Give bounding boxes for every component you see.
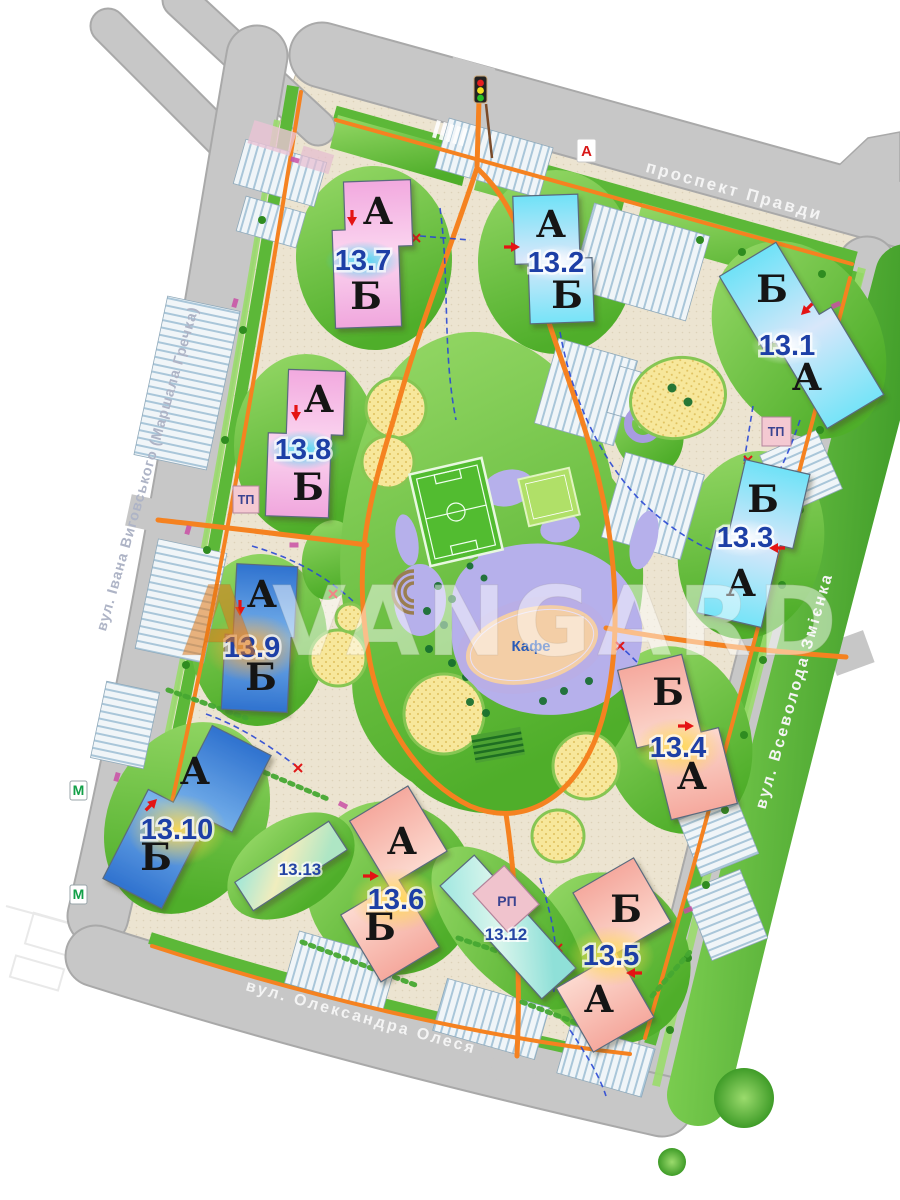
section-letter: А xyxy=(536,202,566,246)
section-letter: А xyxy=(387,819,417,863)
section-letter: А xyxy=(677,754,707,798)
watermark-text: VANGARD xyxy=(272,566,843,678)
transit-stop-label: А xyxy=(581,143,592,160)
section-letter: А xyxy=(584,977,614,1021)
site-plan-map: Кафе xyxy=(0,0,900,1200)
building-number: 13.13 xyxy=(279,860,322,879)
building-number: 13.12 xyxy=(485,925,528,944)
metro-label: М xyxy=(73,886,85,902)
section-letter: Б xyxy=(756,267,788,311)
watermark-first-letter: A xyxy=(182,566,262,678)
section-letter: Б xyxy=(747,477,779,521)
building-number: 13.3 xyxy=(717,522,773,554)
section-letter: Б xyxy=(140,835,172,879)
section-letter: Б xyxy=(610,887,642,931)
transit-stop: А xyxy=(577,139,596,162)
section-letter: Б xyxy=(350,274,382,318)
building-number: 13.8 xyxy=(275,434,331,466)
watermark: A VANGARD xyxy=(182,566,843,678)
metro-label: М xyxy=(73,782,85,798)
tp-label: ТП xyxy=(238,493,255,507)
metro-entrance-2: М xyxy=(70,885,87,904)
metro-entrance-1: М xyxy=(70,781,87,800)
section-letter: Б xyxy=(292,465,324,509)
section-letter: А xyxy=(363,189,393,233)
rp-label: РП xyxy=(497,893,516,909)
section-letter: А xyxy=(180,749,210,793)
section-letter: А xyxy=(304,377,334,421)
building-number: 13.5 xyxy=(583,940,639,972)
transformer-station-1: ТП xyxy=(233,486,259,513)
transformer-station-2: ТП xyxy=(762,417,791,446)
section-letter: Б xyxy=(551,273,583,317)
sport-court xyxy=(518,468,579,526)
section-letter: Б xyxy=(364,905,396,949)
building-number: 13.7 xyxy=(335,245,391,277)
tp-label: ТП xyxy=(768,425,785,439)
section-letter: А xyxy=(792,355,822,399)
